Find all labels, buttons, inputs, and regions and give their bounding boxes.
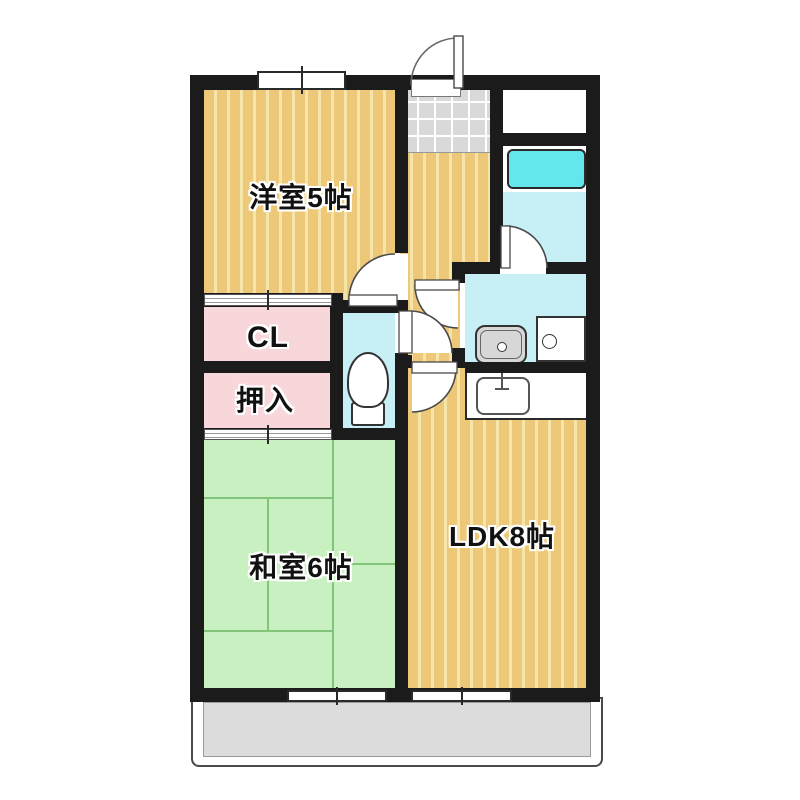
western-room-door-leaf [349,295,397,306]
door-arcs [0,0,800,800]
entrance-door-arc [411,38,458,85]
ldk-door-leaf [412,362,457,373]
closet-label: CL [247,321,289,355]
western-room-label: 洋室5帖 [249,176,353,216]
oshiire-label: 押入 [236,379,294,419]
toilet-door-leaf [399,311,412,353]
bath-door-leaf [501,226,510,268]
entrance-door-leaf [454,36,463,88]
floor-plan: 洋室5帖 CL 押入 和室6帖 LDK8帖 [0,0,800,800]
japanese-room-label: 和室6帖 [249,546,353,586]
western-room-door-fill [349,254,408,300]
washroom-door-leaf [415,280,459,290]
ldk-label: LDK8帖 [449,515,555,555]
